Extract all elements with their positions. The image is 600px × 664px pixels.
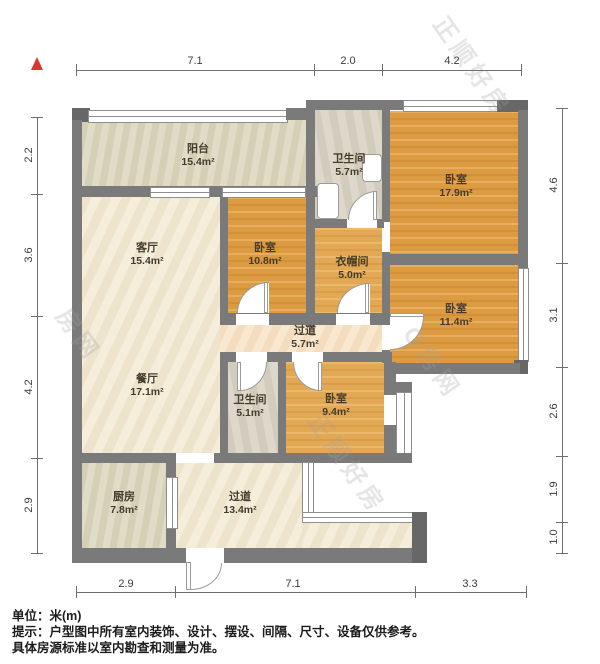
room-living-dining-floor (82, 197, 220, 453)
dim-left-3: 4.2 (23, 379, 35, 394)
bath-mid-door-gap (236, 352, 267, 362)
dim-tick (556, 108, 568, 109)
north-arrow-icon (31, 57, 43, 70)
label-hall: 过道5.7m² (291, 325, 318, 351)
entry-door-arc (191, 563, 222, 590)
label-kitchen: 厨房7.8m² (110, 491, 137, 517)
dim-tick (175, 586, 176, 598)
wall-bottom (72, 548, 427, 563)
kitchen-slider (166, 477, 178, 529)
label-living: 客厅15.4m² (130, 242, 163, 268)
bath-top-door-leaf (373, 191, 377, 220)
dim-line-left (37, 117, 38, 553)
wall-bath-mid-left (220, 362, 228, 453)
balcony-slider-left (150, 187, 210, 198)
bath-mid-door-leaf (237, 362, 241, 391)
bedroom-11-window (518, 268, 529, 362)
label-dining: 餐厅17.1m² (130, 373, 163, 399)
entry-door-gap (186, 548, 224, 563)
label-bedroom-9: 卧室9.4m² (322, 393, 349, 419)
dim-top-2: 2.0 (340, 55, 355, 67)
bay-cap-bottom (394, 453, 412, 463)
dim-tick (31, 316, 43, 317)
wall-bed17-bed11 (388, 254, 518, 265)
wall-bedroom10-left (220, 197, 228, 313)
dim-tick (31, 194, 43, 195)
dim-right-4: 1.9 (548, 481, 560, 496)
dim-top-1: 7.1 (187, 55, 202, 67)
label-passage: 过道13.4m² (223, 491, 256, 517)
cloakroom-door-leaf (365, 283, 369, 313)
dim-left-4: 2.9 (23, 497, 35, 512)
bedroom10-door-gap (236, 314, 269, 325)
dim-tick (556, 263, 568, 264)
bedroom9-bay-window (396, 392, 412, 456)
bedroom10-door-leaf (264, 282, 268, 313)
dim-tick (556, 456, 568, 457)
dim-tick (76, 64, 77, 76)
dim-tick (556, 522, 568, 523)
dim-tick (415, 586, 416, 598)
label-bath-top: 卫生间5.7m² (333, 153, 366, 179)
passage-window-vertical (302, 462, 314, 517)
cloakroom-door-gap (336, 314, 370, 325)
dim-top-3: 4.2 (444, 55, 459, 67)
dim-tick (526, 586, 527, 598)
bathtub-fixture (317, 183, 339, 219)
dim-line-top (76, 70, 522, 71)
bedroom11-door-leaf (390, 313, 424, 317)
dim-tick (521, 64, 522, 76)
dining-door-gap (176, 453, 214, 463)
label-bedroom-17: 卧室17.9m² (439, 174, 472, 200)
dim-bottom-3: 3.3 (462, 578, 477, 590)
balcony-slider-right (222, 187, 306, 198)
dim-tick (556, 553, 568, 554)
balcony-top-window (88, 110, 288, 123)
bedroom9-door-gap (292, 352, 323, 362)
footer-disclaimer-line2: 具体房源标准以室内勘查和测量为准。 (12, 637, 225, 656)
dim-right-2: 3.1 (548, 307, 560, 322)
dim-tick (382, 64, 383, 76)
label-bedroom-10: 卧室10.8m² (248, 242, 281, 268)
label-bath-mid: 卫生间5.1m² (234, 394, 267, 420)
label-cloakroom: 衣帽间5.0m² (336, 256, 369, 282)
dim-line-right (562, 108, 563, 553)
wall-bath-mid-right (278, 362, 286, 453)
dim-tick (31, 553, 43, 554)
bedroom9-door-leaf (318, 362, 322, 391)
passage-window-horizontal (302, 512, 416, 523)
dim-tick (556, 367, 568, 368)
dim-bottom-2: 7.1 (285, 578, 300, 590)
wall-corner-passage (412, 512, 427, 563)
label-bedroom-11: 卧室11.4m² (440, 303, 473, 329)
bay-cap-top (394, 382, 412, 392)
dim-bottom-1: 2.9 (118, 578, 133, 590)
wall-right-upper (518, 110, 528, 268)
dim-tick (31, 117, 43, 118)
bedroom9-bay-opening (384, 395, 396, 425)
entry-door-leaf (186, 562, 191, 590)
dim-left-1: 2.2 (23, 147, 35, 162)
dim-tick (314, 64, 315, 76)
wall-center-upper (382, 100, 390, 222)
label-balcony: 阳台15.4m² (181, 143, 214, 169)
dim-tick (76, 586, 77, 598)
dim-right-3: 2.6 (548, 403, 560, 418)
room-passage-ext-floor (302, 521, 412, 548)
wall-bath-left (306, 108, 315, 327)
floorplan-page: { "rooms": [ {"name":"阳台","area":"15.4m²… (0, 0, 600, 664)
dim-right-1: 4.6 (548, 177, 560, 192)
dim-line-bottom (76, 592, 527, 593)
dim-tick (31, 458, 43, 459)
dim-left-2: 3.6 (23, 247, 35, 262)
dim-right-5: 1.0 (548, 529, 560, 544)
bath-top-door-gap (347, 219, 377, 228)
